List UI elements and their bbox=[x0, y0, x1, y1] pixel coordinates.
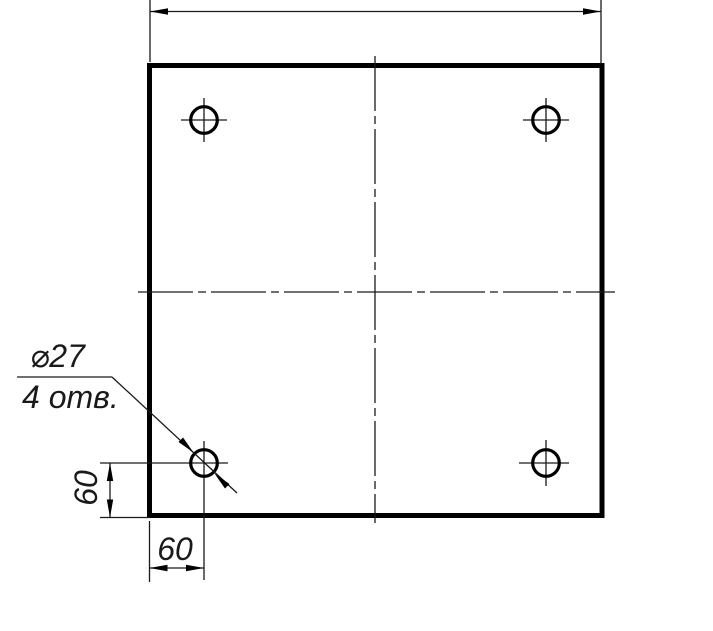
arrowhead-icon bbox=[583, 8, 601, 14]
hole-diameter-label: ⌀27 bbox=[30, 338, 86, 374]
dimension-value: 60 bbox=[157, 531, 193, 567]
hole-bottom-right bbox=[519, 440, 569, 486]
arrowhead-icon bbox=[107, 463, 113, 481]
drawing-canvas: 60 60 ⌀27 4 отв. bbox=[0, 0, 713, 631]
dimension-value: 60 bbox=[68, 470, 104, 506]
plate-outline bbox=[150, 66, 603, 516]
left-dimension-60: 60 bbox=[68, 463, 151, 518]
arrowhead-icon bbox=[150, 8, 168, 14]
arrowhead-icon bbox=[212, 471, 229, 488]
arrowhead-icon bbox=[107, 500, 113, 518]
bottom-dimension-60: 60 bbox=[150, 521, 205, 582]
top-dimension bbox=[150, 0, 601, 63]
hole-count-label: 4 отв. bbox=[22, 379, 119, 415]
hole-top-left bbox=[181, 98, 227, 142]
plate-drawing: 60 60 ⌀27 4 отв. bbox=[0, 0, 713, 631]
arrowhead-icon bbox=[179, 438, 196, 455]
leader-line bbox=[112, 377, 237, 493]
hole-top-right bbox=[523, 98, 569, 142]
